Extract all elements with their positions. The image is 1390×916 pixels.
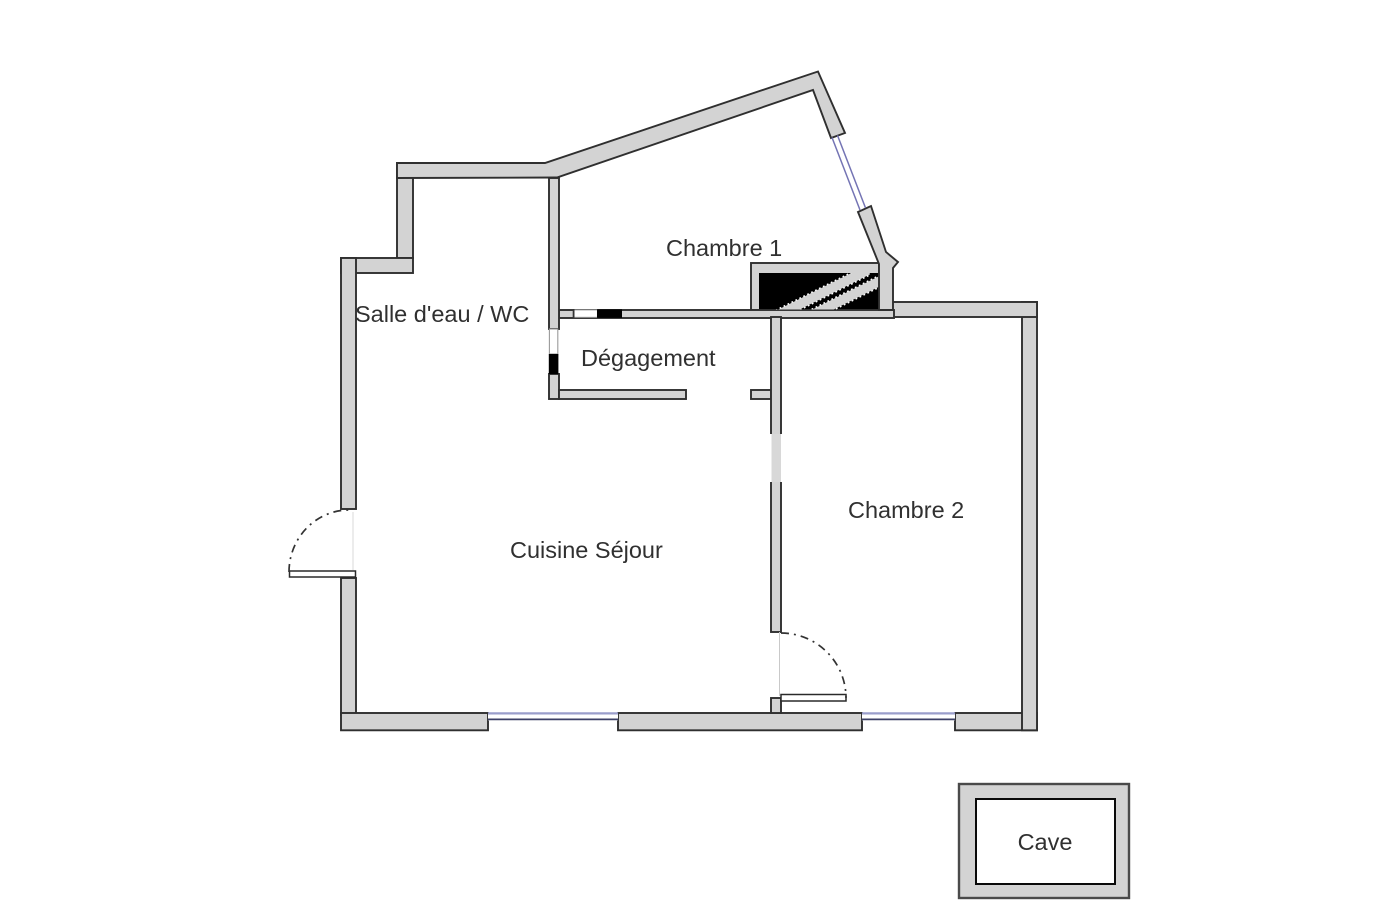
svg-text:Cuisine Séjour: Cuisine Séjour xyxy=(510,537,663,563)
svg-text:Dégagement: Dégagement xyxy=(581,345,716,371)
svg-text:Chambre 1: Chambre 1 xyxy=(666,235,782,261)
svg-text:Salle d'eau / WC: Salle d'eau / WC xyxy=(355,301,529,327)
svg-text:Cave: Cave xyxy=(1018,829,1073,855)
svg-text:Chambre 2: Chambre 2 xyxy=(848,497,964,523)
